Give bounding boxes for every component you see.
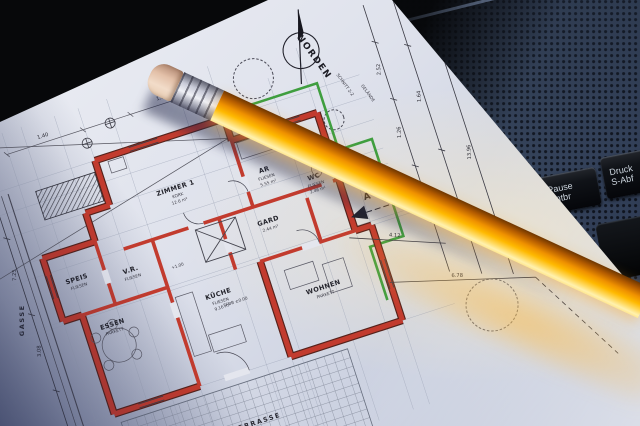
level-upper: +1.00 (171, 261, 185, 270)
terrace (121, 349, 373, 426)
dim-value: 1.26 (396, 126, 403, 138)
manhole-symbols (77, 117, 120, 150)
terrain-label: GELÄNDE (360, 83, 376, 103)
compass: NORDEN (272, 5, 334, 90)
dim-value: 7.25 (12, 269, 19, 281)
dim-value: 3.08 (36, 345, 43, 357)
dim-value: 13.96 (466, 144, 473, 159)
dim-value: 2.52 (376, 64, 383, 76)
street-label: GASSE (18, 304, 26, 336)
street-lines (1, 194, 85, 426)
dim-value: 1.40 (37, 132, 50, 141)
photo-scene: Pause Untbr Druck S-Abf (0, 0, 640, 426)
dim-value: 1.64 (416, 90, 423, 103)
section-line-label: SCHNITT 2-2 (335, 72, 355, 96)
